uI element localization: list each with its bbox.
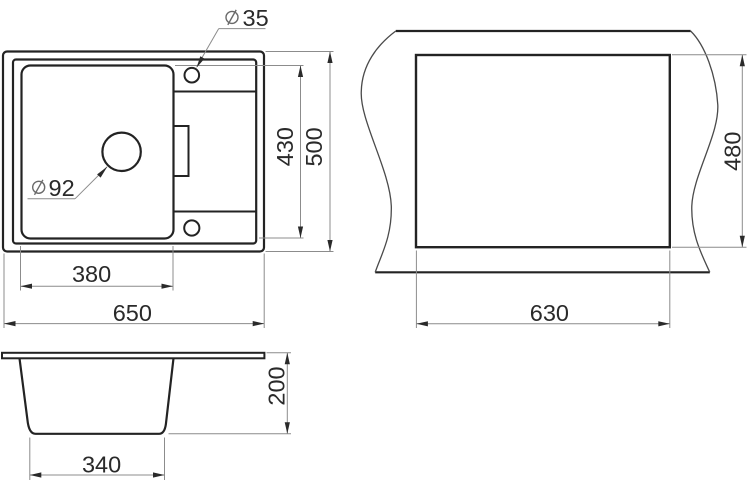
svg-text:340: 340 <box>82 451 121 477</box>
svg-text:630: 630 <box>530 300 569 326</box>
svg-text:200: 200 <box>264 366 290 405</box>
svg-text:650: 650 <box>113 300 152 326</box>
svg-text:480: 480 <box>720 132 746 171</box>
svg-text:92: 92 <box>49 175 75 201</box>
svg-text:380: 380 <box>72 261 111 287</box>
svg-text:500: 500 <box>301 127 327 166</box>
svg-text:35: 35 <box>243 5 269 31</box>
svg-text:430: 430 <box>272 127 298 166</box>
